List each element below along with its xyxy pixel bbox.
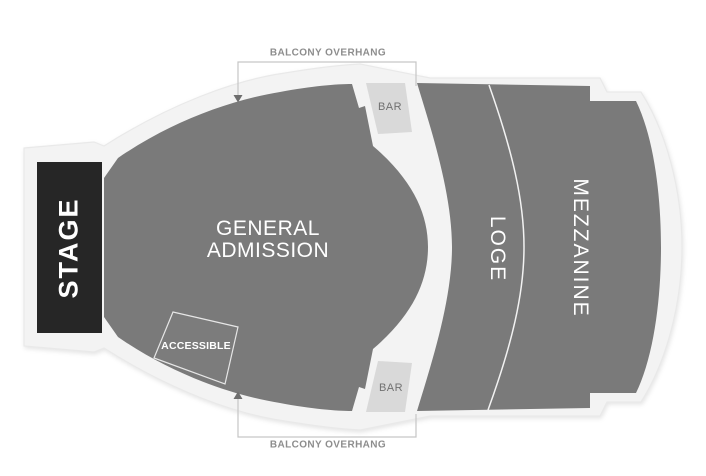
venue-seating-map: STAGE GENERAL ADMISSION LOGE MEZZANINE A…: [0, 0, 706, 476]
seating-map-canvas: [0, 0, 706, 476]
loge-mezzanine-section[interactable]: [417, 83, 661, 411]
stage-section: [37, 162, 102, 333]
